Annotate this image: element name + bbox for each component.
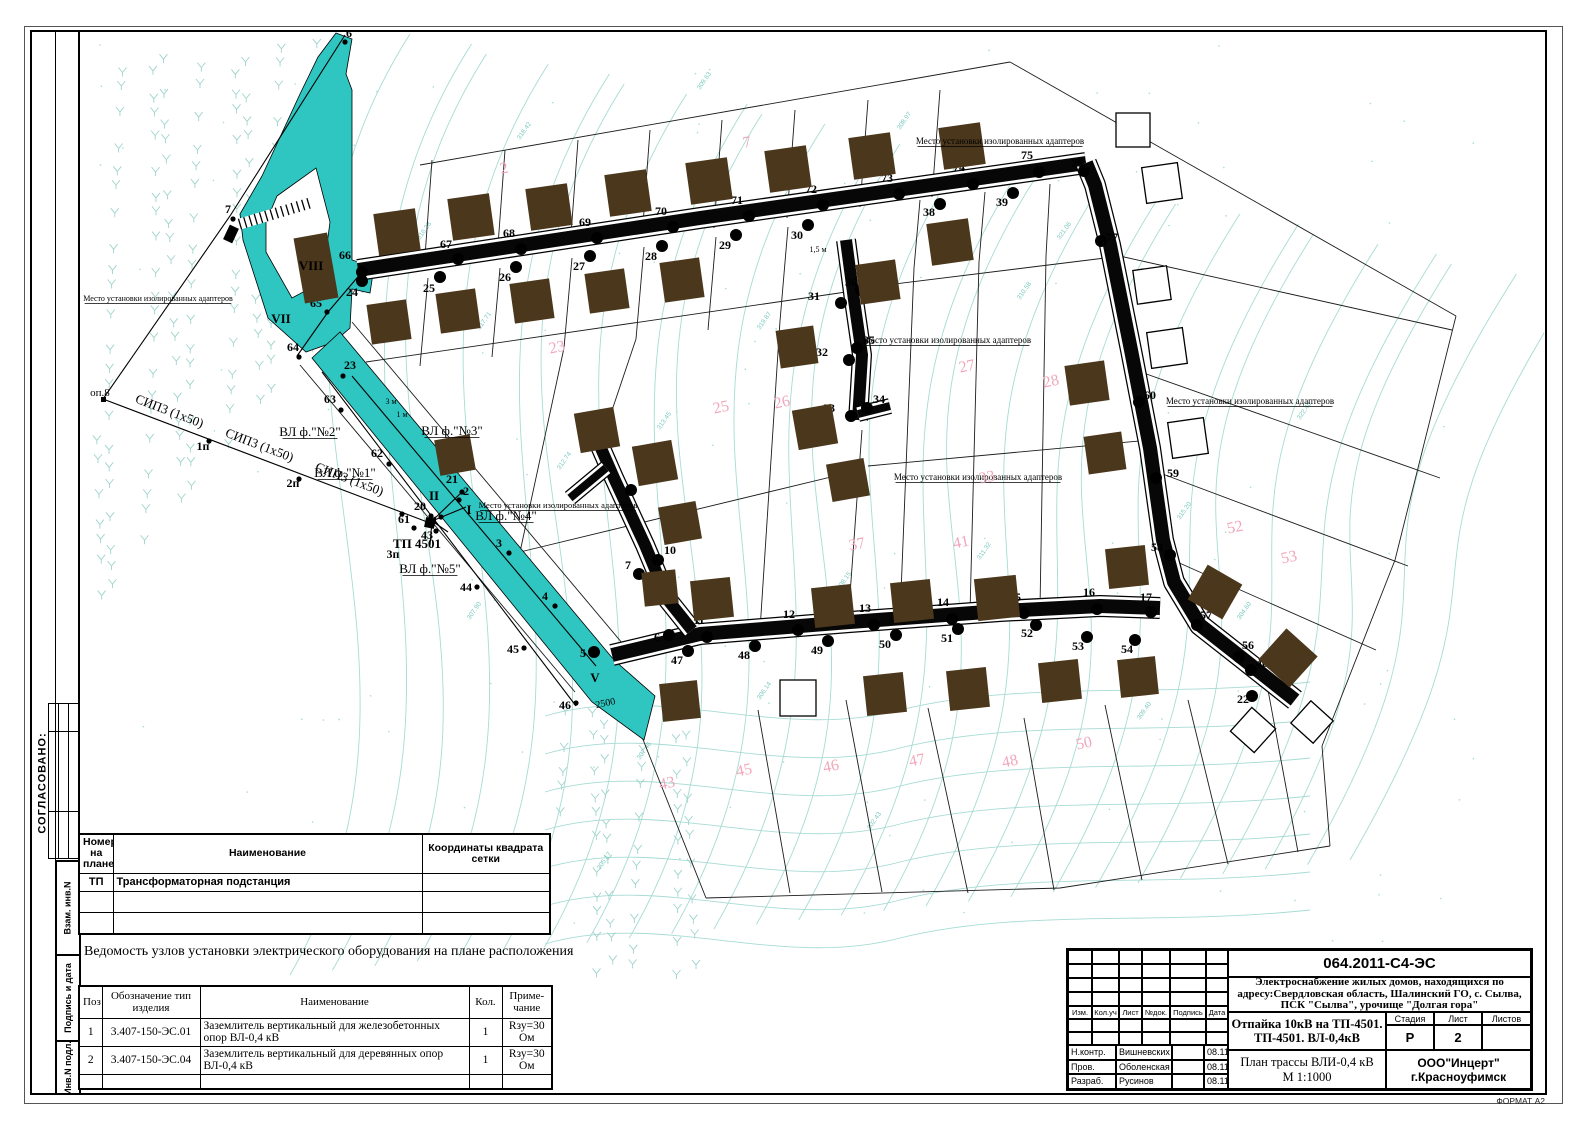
rev-grid-cell <box>1119 964 1142 978</box>
rev-grid-cell <box>1170 1032 1206 1045</box>
rev-grid-cell <box>1170 992 1206 1006</box>
rev-header: Подпись <box>1170 1006 1206 1019</box>
company-text: ООО"Инцерт" <box>1417 1056 1499 1070</box>
parts-col-name: Наименование <box>200 986 469 1018</box>
rev-grid-cell <box>1170 1019 1206 1032</box>
sign-cell: 08.11 <box>1204 1045 1228 1060</box>
object-line1: Отпайка 10кВ на ТП-4501. <box>1232 1017 1383 1031</box>
grid-line <box>68 704 69 858</box>
parts-cell: 1 <box>79 1018 102 1046</box>
table-row: 1 3.407-150-ЭС.01 Заземлитель вертикальн… <box>79 1018 552 1046</box>
rev-grid-cell <box>1068 950 1092 964</box>
table-row <box>79 891 550 912</box>
parts-col-qty: Кол. <box>469 986 502 1018</box>
sign-cell: Оболенская <box>1116 1060 1172 1075</box>
eq-cell <box>422 912 550 934</box>
rev-header: Дата <box>1206 1006 1228 1019</box>
table-row: ТП Трансформаторная подстанция <box>79 873 550 891</box>
parts-cell: 1 <box>469 1018 502 1046</box>
rev-header: Лист <box>1119 1006 1142 1019</box>
rev-grid-cell <box>1092 950 1119 964</box>
drawing-scale: М 1:1000 <box>1283 1070 1332 1084</box>
title-block: 064.2011-С4-ЭС Электроснабжение жилых до… <box>1066 948 1533 1091</box>
rev-grid-cell <box>1068 1019 1092 1032</box>
rev-grid-cell <box>1119 992 1142 1006</box>
rev-grid-cell <box>1142 1032 1170 1045</box>
rev-grid-cell <box>1068 1032 1092 1045</box>
parts-cell: 3.407-150-ЭС.01 <box>102 1018 200 1046</box>
object-line2: ТП-4501. ВЛ-0,4кВ <box>1254 1031 1360 1045</box>
eq-cell <box>113 912 422 934</box>
rev-grid-cell <box>1206 1019 1228 1032</box>
company-name: ООО"Инцерт" г.Красноуфимск <box>1386 1050 1531 1089</box>
rev-grid-cell <box>1092 978 1119 992</box>
object-title: Отпайка 10кВ на ТП-4501. ТП-4501. ВЛ-0,4… <box>1228 1012 1386 1050</box>
parts-cell: 3.407-150-ЭС.04 <box>102 1046 200 1074</box>
sign-cell <box>1172 1060 1204 1075</box>
main-frame <box>30 30 1547 1095</box>
rev-grid-cell <box>1119 978 1142 992</box>
eq-col-number: Номер на плане <box>79 834 113 873</box>
parts-cell: 2 <box>79 1046 102 1074</box>
rev-grid-cell <box>1206 1032 1228 1045</box>
rev-grid-cell <box>1092 1032 1119 1045</box>
rev-grid-cell <box>1142 992 1170 1006</box>
eq-cell <box>113 891 422 912</box>
rev-header: №док. <box>1142 1006 1170 1019</box>
parts-cell <box>200 1074 469 1089</box>
rev-grid-cell <box>1068 978 1092 992</box>
drawing-title-text: План трассы ВЛИ-0,4 кВ <box>1240 1055 1373 1069</box>
rev-grid-cell <box>1092 1019 1119 1032</box>
eq-cell: ТП <box>79 873 113 891</box>
sign-cell: 08.11 <box>1204 1060 1228 1075</box>
approval-grid <box>48 703 80 859</box>
sign-cell: Вишневских <box>1116 1045 1172 1060</box>
rev-grid-cell <box>1206 950 1228 964</box>
parts-cell <box>502 1074 552 1089</box>
inv-podl-label: Инв.N подл. <box>63 1041 73 1095</box>
table-row: 2 3.407-150-ЭС.04 Заземлитель вертикальн… <box>79 1046 552 1074</box>
rev-header: Изм. <box>1068 1006 1092 1019</box>
sign-cell <box>1172 1045 1204 1060</box>
equipment-table-caption: Ведомость узлов установки электрического… <box>84 944 573 960</box>
rev-grid-cell <box>1170 964 1206 978</box>
rev-grid-cell <box>1170 950 1206 964</box>
grid-line <box>49 811 79 812</box>
sign-cell: Русинов <box>1116 1074 1172 1089</box>
parts-col-pos: Поз <box>79 986 102 1018</box>
rev-grid-cell <box>1142 964 1170 978</box>
sign-cell: Н.контр. <box>1068 1045 1116 1060</box>
table-row <box>79 912 550 934</box>
rev-header: Кол.уч <box>1092 1006 1119 1019</box>
sign-cell: Разраб. <box>1068 1074 1116 1089</box>
stage-header: Стадия <box>1386 1012 1434 1025</box>
vzam-inv-label: Взам. инв.N <box>63 881 73 934</box>
parts-cell <box>469 1074 502 1089</box>
parts-table: Поз Обозначение тип изделия Наименование… <box>78 985 553 1090</box>
rev-grid-cell <box>1068 964 1092 978</box>
rev-grid-cell <box>1119 1019 1142 1032</box>
grid-line <box>49 731 79 732</box>
podpis-data-label: Подпись и дата <box>63 963 73 1033</box>
parts-cell <box>79 1074 102 1089</box>
sheet-header: Лист <box>1434 1012 1482 1025</box>
rev-grid-cell <box>1206 978 1228 992</box>
drawing-sheet: 310.58309.63307.46308.97302.43318.42320.… <box>0 0 1587 1123</box>
project-description: Электроснабжение жилых домов, находящихс… <box>1228 977 1531 1012</box>
equipment-table: Номер на плане Наименование Координаты к… <box>78 833 551 935</box>
parts-col-type: Обозначение тип изделия <box>102 986 200 1018</box>
eq-col-coords: Координаты квадрата сетки <box>422 834 550 873</box>
soglasovano-label: СОГЛАСОВАНО: <box>37 732 49 833</box>
parts-col-note: Приме- чание <box>502 986 552 1018</box>
sheets-value <box>1482 1025 1531 1050</box>
rev-grid-cell <box>1119 1032 1142 1045</box>
eq-cell <box>422 891 550 912</box>
company-city: г.Красноуфимск <box>1411 1070 1506 1084</box>
eq-col-name: Наименование <box>113 834 422 873</box>
sheet-value: 2 <box>1434 1025 1482 1050</box>
stage-value: Р <box>1386 1025 1434 1050</box>
parts-cell: Заземлитель вертикальный для деревянных … <box>200 1046 469 1074</box>
drawing-title: План трассы ВЛИ-0,4 кВ М 1:1000 <box>1228 1050 1386 1089</box>
rev-grid-cell <box>1206 964 1228 978</box>
rev-grid-cell <box>1206 992 1228 1006</box>
grid-line <box>58 704 59 858</box>
parts-cell: Rзу=30 Ом <box>502 1046 552 1074</box>
rev-grid-cell <box>1142 1019 1170 1032</box>
sheets-header: Листов <box>1482 1012 1531 1025</box>
parts-cell: 1 <box>469 1046 502 1074</box>
rev-grid-cell <box>1142 978 1170 992</box>
parts-cell: Заземлитель вертикальный для железобетон… <box>200 1018 469 1046</box>
sign-cell: 08.11 <box>1204 1074 1228 1089</box>
parts-cell <box>102 1074 200 1089</box>
rev-grid-cell <box>1170 978 1206 992</box>
eq-cell <box>79 912 113 934</box>
eq-cell: Трансформаторная подстанция <box>113 873 422 891</box>
rev-grid-cell <box>1092 992 1119 1006</box>
parts-cell: Rзу=30 Ом <box>502 1018 552 1046</box>
eq-cell <box>79 891 113 912</box>
rev-grid-cell <box>1142 950 1170 964</box>
sign-cell <box>1172 1074 1204 1089</box>
format-label: ФОРМАТ А2 <box>1440 1096 1545 1106</box>
table-row <box>79 1074 552 1089</box>
rev-grid-cell <box>1092 964 1119 978</box>
sign-cell: Пров. <box>1068 1060 1116 1075</box>
eq-cell <box>422 873 550 891</box>
rev-grid-cell <box>1119 950 1142 964</box>
rev-grid-cell <box>1068 992 1092 1006</box>
document-number: 064.2011-С4-ЭС <box>1228 950 1531 977</box>
